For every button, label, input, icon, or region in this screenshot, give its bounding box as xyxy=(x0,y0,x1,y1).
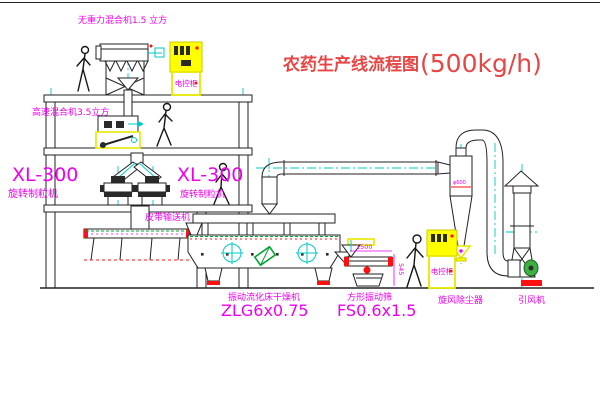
duct-inlet-cone xyxy=(438,162,450,174)
label-high-speed-mixer: 高速混合机3.5立方 xyxy=(32,106,109,118)
floor-slab-2 xyxy=(44,148,252,155)
worker-figure-2 xyxy=(157,104,172,147)
label-fan: 引风机 xyxy=(518,294,545,306)
label-gravity-free-mixer: 无重力混合机1.5 立方 xyxy=(78,14,167,26)
drawing-surface: 电控柜 xyxy=(0,0,600,403)
dimension-1500: 1500 xyxy=(350,243,392,251)
worker-figure-4 xyxy=(407,235,423,287)
foot-pad xyxy=(317,281,330,285)
indicator-dot xyxy=(450,270,453,273)
label-screen-model: FS0.6x1.5 xyxy=(337,301,416,320)
indicator-dot xyxy=(450,234,453,237)
cad-flow-diagram: 电控柜 xyxy=(0,0,600,403)
granulator-right xyxy=(134,176,170,205)
mixer-discharge-chute xyxy=(124,90,132,116)
belt-conveyor xyxy=(84,223,202,260)
fan-base xyxy=(521,280,542,286)
dryer-foot-left xyxy=(205,268,222,281)
label-dryer-model: ZLG6x0.75 xyxy=(221,301,309,320)
dryer-foot-right xyxy=(315,268,332,281)
label-granulator-right-model: XL-300 xyxy=(177,164,243,186)
floor-slab-1 xyxy=(44,95,252,102)
control-cabinet-1: 电控柜 xyxy=(170,42,202,95)
label-cyclone: 旋风除尘器 xyxy=(438,294,483,306)
high-speed-mixer xyxy=(96,116,144,148)
cabinet-label: 电控柜 xyxy=(175,78,198,88)
fluid-bed-dryer xyxy=(188,214,352,285)
worker-figure-1 xyxy=(77,47,90,92)
label-belt-conveyor: 皮带输送机 xyxy=(145,211,190,223)
title-capacity: (500kg/h) xyxy=(420,49,542,78)
screen-motor xyxy=(364,267,371,274)
indicator-dot xyxy=(195,46,198,49)
svg-text:545: 545 xyxy=(397,263,405,275)
title-text: 农药生产线流程图 xyxy=(282,54,419,75)
screen-base xyxy=(353,274,383,286)
svg-text:1500: 1500 xyxy=(356,243,373,251)
foot-pad xyxy=(207,281,220,285)
cyclone-dim-label: φ600 xyxy=(453,180,466,186)
label-granulator-left-model: XL-300 xyxy=(12,164,78,186)
fan-inlet-box xyxy=(508,260,520,277)
dimension-545: 545 xyxy=(394,254,405,286)
indicator-dot xyxy=(195,82,198,85)
indicator-dot xyxy=(150,45,153,48)
vibrating-screen: 1500 545 xyxy=(342,239,405,286)
gravity-free-mixer xyxy=(96,44,164,116)
label-granulator-right-name: 旋转制粒机 xyxy=(180,188,225,200)
control-cabinet-2: 电控柜 xyxy=(427,230,457,288)
dryer-hood xyxy=(193,214,335,223)
spring-mounts xyxy=(202,223,325,235)
induced-draft-fan xyxy=(508,260,542,286)
drawing-title: 农药生产线流程图 (500kg/h) xyxy=(282,49,542,78)
label-granulator-left-name: 旋转制粒机 xyxy=(8,187,58,200)
